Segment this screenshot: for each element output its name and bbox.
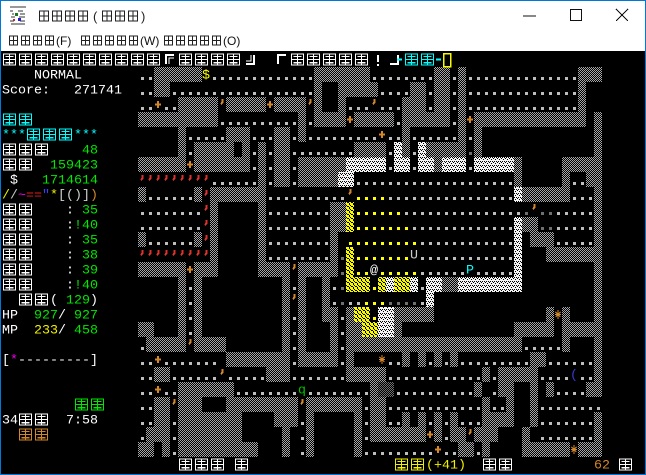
svg-text:!40: !40 xyxy=(74,278,98,293)
svg-text:(: ( xyxy=(66,188,74,203)
svg-text:*: * xyxy=(50,188,58,203)
svg-text:q: q xyxy=(298,383,306,398)
svg-text::: : xyxy=(66,278,74,293)
svg-text:NORMAL: NORMAL xyxy=(34,68,82,83)
svg-text:38: 38 xyxy=(82,248,98,263)
svg-text:P: P xyxy=(466,263,474,278)
svg-text:!40: !40 xyxy=(74,218,98,233)
svg-text:): ) xyxy=(74,188,82,203)
svg-text:927: 927 xyxy=(34,308,58,323)
svg-text:": " xyxy=(42,188,50,203)
svg-text:129: 129 xyxy=(66,293,90,308)
svg-text:271741: 271741 xyxy=(74,83,122,98)
svg-text:@: @ xyxy=(370,264,378,278)
svg-text:159423: 159423 xyxy=(50,158,98,173)
svg-text:233: 233 xyxy=(34,323,58,338)
svg-text:7:58: 7:58 xyxy=(66,413,98,428)
svg-text:MP: MP xyxy=(2,323,18,338)
svg-text:***: *** xyxy=(2,128,26,143)
svg-text:62: 62 xyxy=(594,458,610,473)
svg-text:$: $ xyxy=(202,68,210,83)
svg-text:): ) xyxy=(141,9,145,24)
svg-text:927: 927 xyxy=(74,308,98,323)
svg-text:U: U xyxy=(410,248,418,263)
svg-text:48: 48 xyxy=(82,143,98,158)
svg-text:34: 34 xyxy=(2,413,18,428)
svg-text:]: ] xyxy=(82,188,90,203)
svg-text:[: [ xyxy=(2,353,10,368)
svg-text:*: * xyxy=(10,353,18,368)
svg-text:(+41): (+41) xyxy=(426,458,466,473)
svg-text:~: ~ xyxy=(18,188,26,203)
svg-text:): ) xyxy=(90,188,98,203)
svg-text:/: / xyxy=(2,188,10,203)
svg-text::: : xyxy=(66,248,74,263)
svg-text:=: = xyxy=(26,188,34,203)
svg-text:(: ( xyxy=(50,293,58,308)
svg-text:35: 35 xyxy=(82,233,98,248)
svg-text::: : xyxy=(66,233,74,248)
svg-text:(W): (W) xyxy=(140,34,159,48)
svg-text:[: [ xyxy=(58,188,66,203)
svg-text:/: / xyxy=(10,188,18,203)
svg-text:(: ( xyxy=(570,368,578,383)
svg-text:(O): (O) xyxy=(223,34,240,48)
svg-text:---------: --------- xyxy=(18,353,90,368)
svg-text::: : xyxy=(66,203,74,218)
svg-text::: : xyxy=(66,218,74,233)
svg-text:(: ( xyxy=(93,9,98,24)
svg-text:1714614: 1714614 xyxy=(42,173,98,188)
svg-text:39: 39 xyxy=(82,263,98,278)
svg-text:***: *** xyxy=(74,128,98,143)
svg-text:HP: HP xyxy=(2,308,18,323)
svg-text:$: $ xyxy=(10,173,18,188)
svg-text:/: / xyxy=(58,308,66,323)
svg-text:(F): (F) xyxy=(56,34,71,48)
svg-text:458: 458 xyxy=(74,323,98,338)
svg-text:): ) xyxy=(90,293,98,308)
svg-text:=: = xyxy=(34,188,42,203)
svg-text:Score:: Score: xyxy=(2,83,50,98)
svg-text::: : xyxy=(66,263,74,278)
svg-text:]: ] xyxy=(90,353,98,368)
svg-text:/: / xyxy=(58,323,66,338)
svg-text:35: 35 xyxy=(82,203,98,218)
